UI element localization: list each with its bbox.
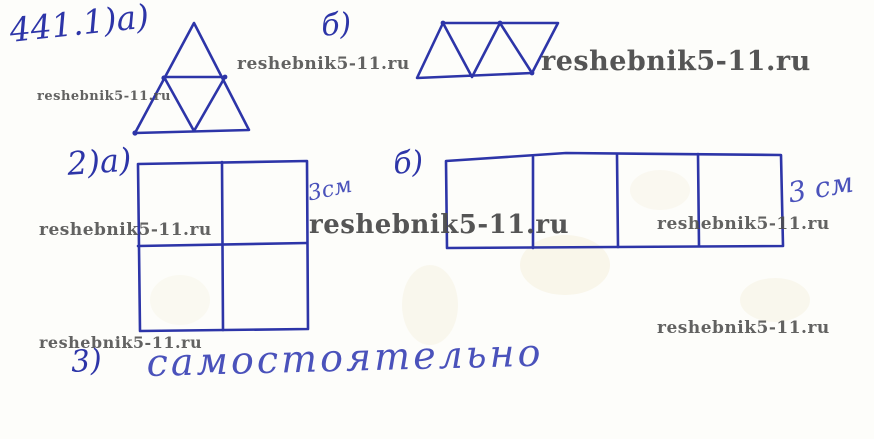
part-b-triangles-label: б) [320, 9, 353, 42]
part-b-rect-label: б) [392, 147, 425, 180]
watermark-reshebnik: reshebnik5-11.ru [309, 212, 569, 238]
part-2a-label: 2)а) [66, 144, 132, 180]
watermark-reshebnik: reshebnik5-11.ru [37, 90, 171, 103]
part-3-answer-text: самостоятельно [146, 334, 544, 382]
watermark-reshebnik: reshebnik5-11.ru [657, 216, 830, 233]
watermark-reshebnik: reshebnik5-11.ru [39, 222, 212, 239]
figure-triangle-divided-into-4 [132, 23, 249, 136]
figure-triangle-strip-of-4 [417, 21, 558, 78]
watermark-reshebnik: reshebnik5-11.ru [541, 48, 811, 75]
watermark-reshebnik: reshebnik5-11.ru [657, 320, 830, 337]
watermark-reshebnik: reshebnik5-11.ru [237, 56, 410, 73]
part-3-label: 3) [70, 346, 103, 378]
handwritten-solution-sheet: reshebnik5-11.ru reshebnik5-11.ru resheb… [0, 0, 874, 439]
